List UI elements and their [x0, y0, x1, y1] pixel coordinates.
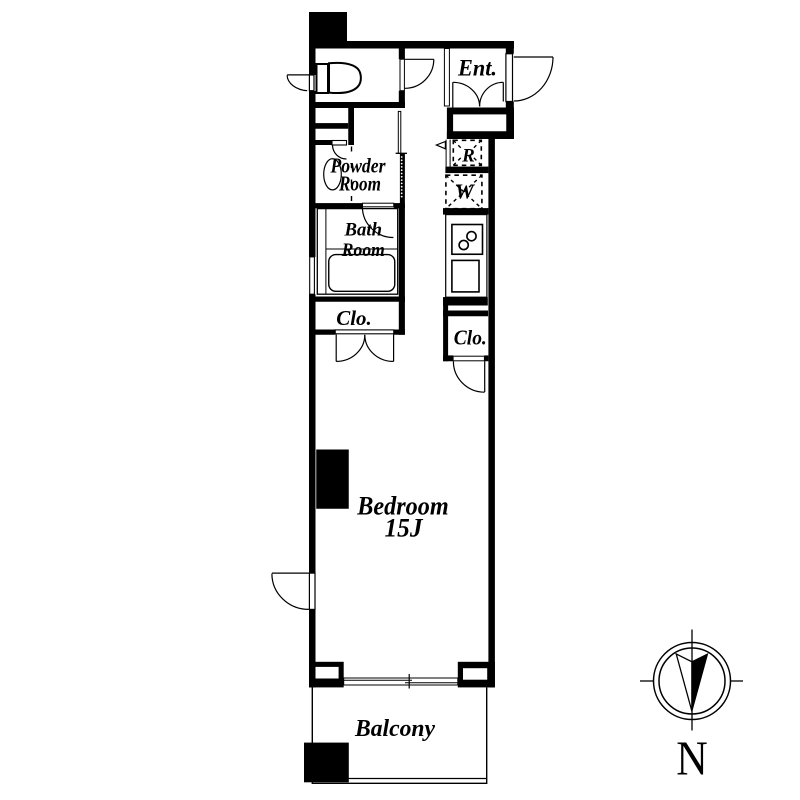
svg-text:W: W: [455, 179, 475, 203]
svg-text:N: N: [676, 731, 708, 786]
svg-text:15J: 15J: [385, 514, 424, 543]
svg-text:Balcony: Balcony: [354, 716, 435, 742]
svg-text:Clo.: Clo.: [336, 306, 372, 330]
svg-text:Ent.: Ent.: [457, 56, 497, 82]
svg-text:Clo.: Clo.: [454, 326, 487, 350]
svg-text:Bath: Bath: [344, 220, 382, 241]
svg-text:Room: Room: [341, 240, 385, 261]
svg-text:R: R: [461, 146, 475, 167]
svg-text:Room: Room: [338, 172, 381, 196]
